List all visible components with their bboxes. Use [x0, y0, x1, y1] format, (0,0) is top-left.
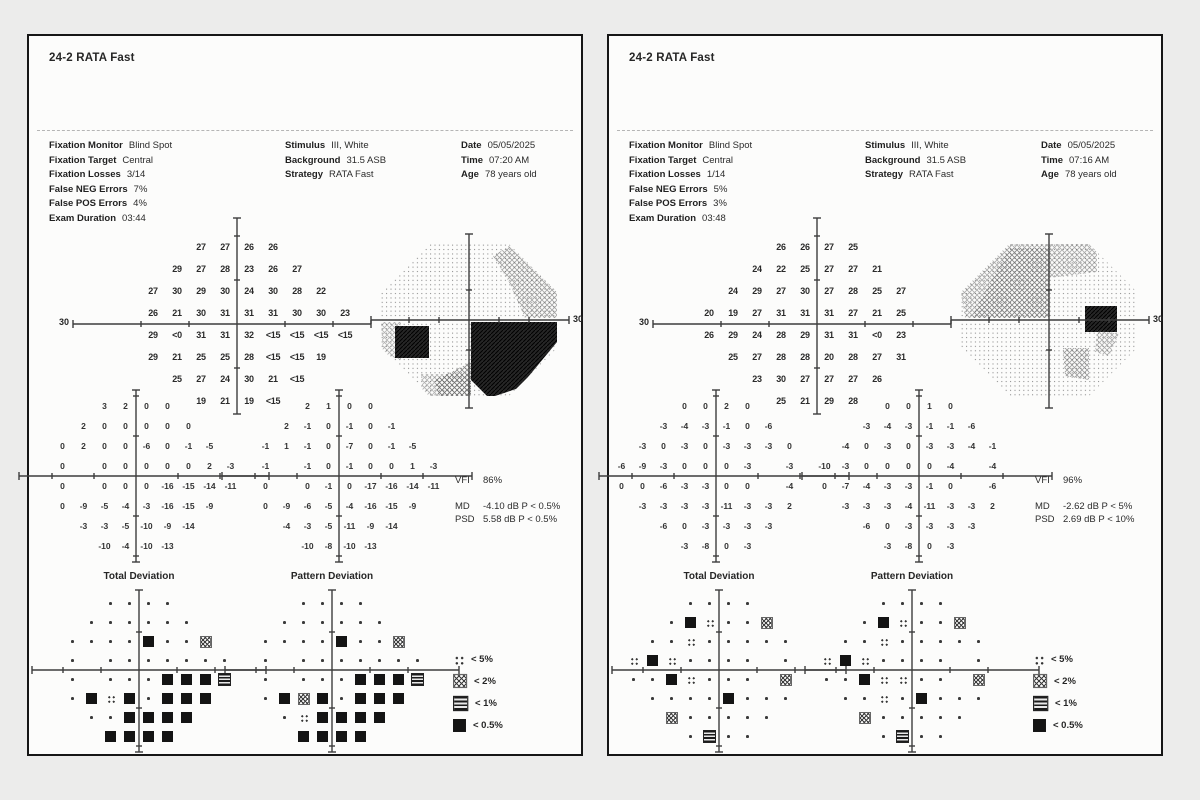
probability-symbol — [177, 651, 196, 670]
value-cell: <15 — [261, 346, 285, 368]
value-cell: 0 — [339, 396, 360, 416]
value-cell: 0 — [919, 456, 940, 476]
value-cell: -1 — [178, 436, 199, 456]
prob-p05-icon — [181, 693, 192, 704]
prob-n-icon — [939, 697, 942, 700]
info-row: Fixation Losses3/14 — [49, 168, 172, 183]
prob-n-icon — [359, 621, 362, 624]
value-cell: 31 — [769, 302, 793, 324]
value-cell: 28 — [769, 346, 793, 368]
probability-symbol — [931, 708, 950, 727]
value-cell: 28 — [213, 258, 237, 280]
value-cell: 2 — [276, 416, 297, 436]
page-title: 24-2 RATA Fast — [49, 52, 135, 64]
value-cell: -1 — [339, 456, 360, 476]
prob-p05-icon — [336, 712, 347, 723]
probability-symbol — [313, 670, 332, 689]
probability-symbol — [389, 670, 408, 689]
value-cell: 29 — [189, 280, 213, 302]
legend-label: < 5% — [1051, 654, 1073, 665]
prob-n-icon — [727, 621, 730, 624]
value-cell: 22 — [309, 280, 333, 302]
probability-symbol — [681, 708, 700, 727]
probability-symbol — [700, 708, 719, 727]
value-cell: -1 — [297, 436, 318, 456]
probability-symbol — [855, 670, 874, 689]
prob-n-icon — [939, 659, 942, 662]
info-row: StrategyRATA Fast — [865, 168, 966, 183]
value-cell: 31 — [237, 302, 261, 324]
probability-symbol — [158, 632, 177, 651]
prob-n-icon — [939, 716, 942, 719]
prob-n-icon — [166, 621, 169, 624]
prob-p2-icon — [859, 712, 871, 724]
probability-symbol — [294, 613, 313, 632]
probability-symbol — [950, 632, 969, 651]
probability-symbol — [719, 613, 738, 632]
prob-n-icon — [708, 602, 711, 605]
info-row: Date05/05/2025 — [1041, 139, 1117, 154]
value-cell: 27 — [817, 258, 841, 280]
value-cell: 0 — [157, 416, 178, 436]
probability-symbol — [855, 651, 874, 670]
md-value: -4.10 dB P < 0.5% — [483, 501, 560, 512]
value-cell: <15 — [309, 324, 333, 346]
prob-p05-icon — [143, 636, 154, 647]
probability-legend: < 5%< 2%< 1%< 0.5% — [453, 648, 503, 736]
probability-symbol — [63, 689, 82, 708]
probability-symbol — [389, 651, 408, 670]
value-cell: 0 — [737, 416, 758, 436]
prob-n-icon — [746, 659, 749, 662]
probability-symbol — [643, 632, 662, 651]
value-cell: -3 — [136, 496, 157, 516]
probability-symbol — [313, 632, 332, 651]
md-label: MD — [455, 500, 483, 514]
probability-symbol — [912, 708, 931, 727]
value-cell: 24 — [213, 368, 237, 390]
prob-n-icon — [882, 659, 885, 662]
legend-item: < 0.5% — [1033, 714, 1083, 736]
probability-symbol — [757, 632, 776, 651]
probability-symbol — [120, 708, 139, 727]
value-cell: 28 — [769, 324, 793, 346]
probability-symbol — [177, 689, 196, 708]
probability-symbol — [738, 594, 757, 613]
probability-symbol — [101, 689, 120, 708]
prob-n-icon — [71, 697, 74, 700]
probability-symbol — [177, 613, 196, 632]
value-cell: 0 — [136, 396, 157, 416]
value-cell: 0 — [157, 456, 178, 476]
value-cell: 0 — [877, 516, 898, 536]
prob-n-icon — [689, 697, 692, 700]
probability-symbol — [912, 594, 931, 613]
prob-p5-icon — [879, 694, 888, 703]
total-deviation-numeric-grid: 0020-3-4-3-10-6-30-30-3-3-30-6-9-3000-3-… — [611, 396, 821, 556]
value-cell: 0 — [674, 516, 695, 536]
info-row: False POS Errors4% — [49, 197, 172, 212]
probability-symbol — [332, 651, 351, 670]
prob-p05-icon — [393, 674, 404, 685]
probability-symbol — [874, 651, 893, 670]
probability-symbol — [101, 613, 120, 632]
prob-n-icon — [264, 678, 267, 681]
prob-p05-icon — [840, 655, 851, 666]
value-cell: -3 — [632, 436, 653, 456]
prob-n-icon — [689, 716, 692, 719]
value-cell: 31 — [889, 346, 913, 368]
value-cell: -4 — [339, 496, 360, 516]
info-row: StimulusIII, White — [865, 139, 966, 154]
vfi-label: VFI — [1035, 474, 1063, 488]
value-cell: 30 — [261, 280, 285, 302]
probability-symbol — [215, 651, 234, 670]
prob-n-icon — [264, 697, 267, 700]
probability-symbol — [351, 708, 370, 727]
info-row: Fixation TargetCentral — [49, 154, 172, 169]
prob-n-icon — [727, 640, 730, 643]
prob-n-icon — [882, 602, 885, 605]
value-cell: 27 — [189, 236, 213, 258]
prob-n-icon — [109, 659, 112, 662]
prob-n-icon — [321, 602, 324, 605]
prob-n-icon — [359, 640, 362, 643]
value-cell: -5 — [115, 516, 136, 536]
prob-n-icon — [359, 602, 362, 605]
probability-symbol — [662, 670, 681, 689]
value-cell: 0 — [360, 456, 381, 476]
value-cell: -4 — [940, 456, 961, 476]
probability-symbol — [969, 689, 988, 708]
value-cell: 0 — [360, 416, 381, 436]
legend-label: < 0.5% — [1053, 720, 1083, 731]
value-cell: -13 — [157, 536, 178, 556]
prob-p5-icon — [898, 675, 907, 684]
probability-symbol — [912, 632, 931, 651]
value-cell: 0 — [115, 416, 136, 436]
prob-n-icon — [939, 621, 942, 624]
exam-params-column: Fixation MonitorBlind SpotFixation Targe… — [629, 139, 752, 227]
value-cell: -3 — [779, 456, 800, 476]
value-cell: 0 — [940, 476, 961, 496]
value-cell: 0 — [255, 496, 276, 516]
value-cell: 0 — [779, 436, 800, 456]
info-row: Time07:20 AM — [461, 154, 537, 169]
value-cell: 0 — [381, 456, 402, 476]
prob-p05-icon — [374, 712, 385, 723]
prob-p05-icon — [355, 731, 366, 742]
prob-n-icon — [109, 621, 112, 624]
value-cell: 29 — [141, 324, 165, 346]
prob-n-icon — [302, 640, 305, 643]
legend-p1-icon — [1033, 695, 1048, 710]
value-cell: 2 — [297, 396, 318, 416]
value-cell: 2 — [73, 416, 94, 436]
value-cell: 28 — [841, 346, 865, 368]
probability-symbol — [855, 708, 874, 727]
value-cell: 0 — [136, 456, 157, 476]
probability-symbol — [82, 613, 101, 632]
value-cell: 30 — [309, 302, 333, 324]
value-cell: 25 — [213, 346, 237, 368]
prob-p5-icon — [667, 656, 676, 665]
value-cell: 21 — [165, 346, 189, 368]
vfi-value: 86% — [483, 475, 502, 486]
pattern-deviation-numeric-grid: 0010-3-4-3-1-1-6-40-30-3-3-4-1-10-30000-… — [814, 396, 1024, 556]
prob-n-icon — [204, 659, 207, 662]
value-cell: -5 — [199, 436, 220, 456]
probability-symbol — [681, 727, 700, 746]
prob-n-icon — [90, 621, 93, 624]
legend-label: < 5% — [471, 654, 493, 665]
value-cell: 0 — [94, 476, 115, 496]
md-label: MD — [1035, 500, 1063, 514]
legend-item: < 5% — [1033, 648, 1083, 670]
probability-symbol — [893, 613, 912, 632]
prob-n-icon — [340, 659, 343, 662]
value-cell: 28 — [285, 280, 309, 302]
prob-n-icon — [670, 697, 673, 700]
value-cell: -1 — [255, 436, 276, 456]
prob-p5-icon — [879, 675, 888, 684]
prob-n-icon — [340, 602, 343, 605]
probability-symbol — [215, 670, 234, 689]
legend-label: < 1% — [1055, 698, 1077, 709]
prob-n-icon — [708, 659, 711, 662]
prob-n-icon — [727, 659, 730, 662]
value-cell: -11 — [339, 516, 360, 536]
value-cell: 28 — [841, 390, 865, 412]
prob-n-icon — [958, 716, 961, 719]
value-cell: -3 — [220, 456, 241, 476]
sensitivity-threshold-grid: 2626272524222527272124292730272825272019… — [697, 236, 937, 412]
probability-symbol — [681, 594, 700, 613]
value-cell: -14 — [381, 516, 402, 536]
probability-symbol — [332, 708, 351, 727]
psd-value: 5.58 dB P < 0.5% — [483, 514, 557, 525]
value-cell: -8 — [318, 536, 339, 556]
probability-symbol — [294, 594, 313, 613]
value-cell: 23 — [889, 324, 913, 346]
probability-symbol — [370, 689, 389, 708]
probability-symbol — [332, 594, 351, 613]
prob-p05-icon — [124, 712, 135, 723]
probability-symbol — [912, 727, 931, 746]
prob-n-icon — [283, 621, 286, 624]
prob-n-icon — [882, 735, 885, 738]
prob-n-icon — [863, 621, 866, 624]
probability-symbol — [700, 632, 719, 651]
value-cell: 21 — [261, 368, 285, 390]
prob-n-icon — [128, 659, 131, 662]
probability-symbol — [139, 613, 158, 632]
probability-symbol — [776, 651, 795, 670]
prob-n-icon — [128, 640, 131, 643]
info-row: Fixation MonitorBlind Spot — [629, 139, 752, 154]
value-cell: -10 — [339, 536, 360, 556]
probability-symbol — [700, 689, 719, 708]
value-cell: -6 — [653, 516, 674, 536]
value-cell: 0 — [877, 396, 898, 416]
value-cell: 31 — [793, 302, 817, 324]
exam-params-column: Fixation MonitorBlind SpotFixation Targe… — [49, 139, 172, 227]
value-cell: 2 — [716, 396, 737, 416]
prob-p5-icon — [705, 618, 714, 627]
value-cell: 27 — [889, 280, 913, 302]
value-cell: 21 — [165, 302, 189, 324]
prob-n-icon — [708, 697, 711, 700]
probability-symbol — [351, 651, 370, 670]
value-cell: 19 — [721, 302, 745, 324]
value-cell: 29 — [141, 346, 165, 368]
prob-p05-icon — [647, 655, 658, 666]
value-cell: -8 — [898, 536, 919, 556]
value-cell: 31 — [261, 302, 285, 324]
prob-p2-icon — [954, 617, 966, 629]
probability-symbol — [101, 594, 120, 613]
value-cell: 21 — [793, 390, 817, 412]
probability-symbol — [139, 689, 158, 708]
probability-symbol — [893, 708, 912, 727]
value-cell: <0 — [165, 324, 189, 346]
value-cell: -3 — [695, 496, 716, 516]
probability-symbol — [120, 613, 139, 632]
info-row: Exam Duration03:48 — [629, 212, 752, 227]
probability-symbol — [950, 613, 969, 632]
prob-n-icon — [765, 716, 768, 719]
probability-symbol — [275, 613, 294, 632]
probability-symbol — [139, 708, 158, 727]
prob-p05-icon — [105, 731, 116, 742]
probability-symbol — [719, 594, 738, 613]
info-row: Age78 years old — [461, 168, 537, 183]
probability-symbol — [836, 632, 855, 651]
prob-n-icon — [378, 640, 381, 643]
prob-p2-icon — [761, 617, 773, 629]
probability-symbol — [719, 727, 738, 746]
prob-p5-icon — [898, 618, 907, 627]
prob-n-icon — [632, 678, 635, 681]
prob-p05-icon — [393, 693, 404, 704]
value-cell: <15 — [285, 368, 309, 390]
value-cell: 29 — [793, 324, 817, 346]
value-cell: -16 — [360, 496, 381, 516]
value-cell: -3 — [898, 516, 919, 536]
prob-p5-icon — [822, 656, 831, 665]
value-cell: -5 — [402, 436, 423, 456]
prob-p05-icon — [355, 693, 366, 704]
probability-symbol — [700, 670, 719, 689]
probability-symbol — [817, 651, 836, 670]
value-cell: 27 — [841, 258, 865, 280]
value-cell: 1 — [402, 456, 423, 476]
prob-n-icon — [71, 640, 74, 643]
prob-n-icon — [863, 697, 866, 700]
global-indices: VFI96% MD-2.62 dB P < 5% PSD2.69 dB P < … — [1035, 474, 1134, 527]
probability-symbol — [370, 670, 389, 689]
probability-symbol — [874, 594, 893, 613]
value-cell: 0 — [898, 396, 919, 416]
value-cell: -4 — [115, 496, 136, 516]
prob-n-icon — [689, 659, 692, 662]
probability-symbol — [700, 651, 719, 670]
value-cell: -1 — [919, 416, 940, 436]
probability-symbol — [757, 708, 776, 727]
value-cell: 30 — [285, 302, 309, 324]
info-row: Background31.5 ASB — [285, 154, 386, 169]
value-cell: -8 — [695, 536, 716, 556]
value-cell: 25 — [889, 302, 913, 324]
prob-n-icon — [651, 697, 654, 700]
value-cell: -11 — [423, 476, 444, 496]
probability-symbol — [700, 594, 719, 613]
probability-symbol — [82, 689, 101, 708]
probability-symbol — [158, 689, 177, 708]
value-cell: 0 — [674, 396, 695, 416]
probability-symbol — [719, 670, 738, 689]
prob-n-icon — [359, 659, 362, 662]
value-cell: -16 — [157, 476, 178, 496]
info-row: Exam Duration03:44 — [49, 212, 172, 227]
probability-symbol — [912, 651, 931, 670]
probability-symbol — [370, 632, 389, 651]
value-cell: 28 — [841, 280, 865, 302]
prob-n-icon — [223, 659, 226, 662]
date-params-column: Date05/05/2025Time07:20 AMAge78 years ol… — [461, 139, 537, 183]
probability-symbol — [817, 670, 836, 689]
value-cell: 0 — [157, 396, 178, 416]
prob-n-icon — [977, 659, 980, 662]
prob-n-icon — [784, 697, 787, 700]
probability-symbol — [256, 670, 275, 689]
probability-symbol — [969, 670, 988, 689]
value-cell: 1 — [919, 396, 940, 416]
value-cell: -1 — [381, 436, 402, 456]
prob-n-icon — [283, 640, 286, 643]
probability-symbol — [177, 708, 196, 727]
value-cell: 27 — [769, 280, 793, 302]
global-indices: VFI86% MD-4.10 dB P < 0.5% PSD5.58 dB P … — [455, 474, 560, 527]
probability-symbol — [82, 708, 101, 727]
probability-symbol — [738, 613, 757, 632]
info-row: Fixation TargetCentral — [629, 154, 752, 169]
info-row: StrategyRATA Fast — [285, 168, 386, 183]
value-cell: -1 — [982, 436, 1003, 456]
probability-symbol — [275, 632, 294, 651]
value-cell: -4 — [779, 476, 800, 496]
prob-n-icon — [746, 640, 749, 643]
value-cell: 0 — [115, 456, 136, 476]
value-cell: 0 — [737, 476, 758, 496]
prob-p05-icon — [181, 712, 192, 723]
value-cell: 0 — [898, 456, 919, 476]
prob-n-icon — [147, 678, 150, 681]
value-cell: -1 — [381, 416, 402, 436]
sensitivity-threshold-grid: 2727262629272823262727302930243028222621… — [117, 236, 357, 412]
probability-symbol — [158, 594, 177, 613]
value-cell: 27 — [817, 368, 841, 390]
value-cell: 30 — [237, 368, 261, 390]
value-cell: 27 — [213, 236, 237, 258]
value-cell: 0 — [877, 456, 898, 476]
prob-p05-icon — [124, 693, 135, 704]
value-cell: 25 — [721, 346, 745, 368]
probability-symbol — [719, 651, 738, 670]
prob-p5-icon — [629, 656, 638, 665]
prob-n-icon — [109, 678, 112, 681]
probability-symbol — [776, 632, 795, 651]
